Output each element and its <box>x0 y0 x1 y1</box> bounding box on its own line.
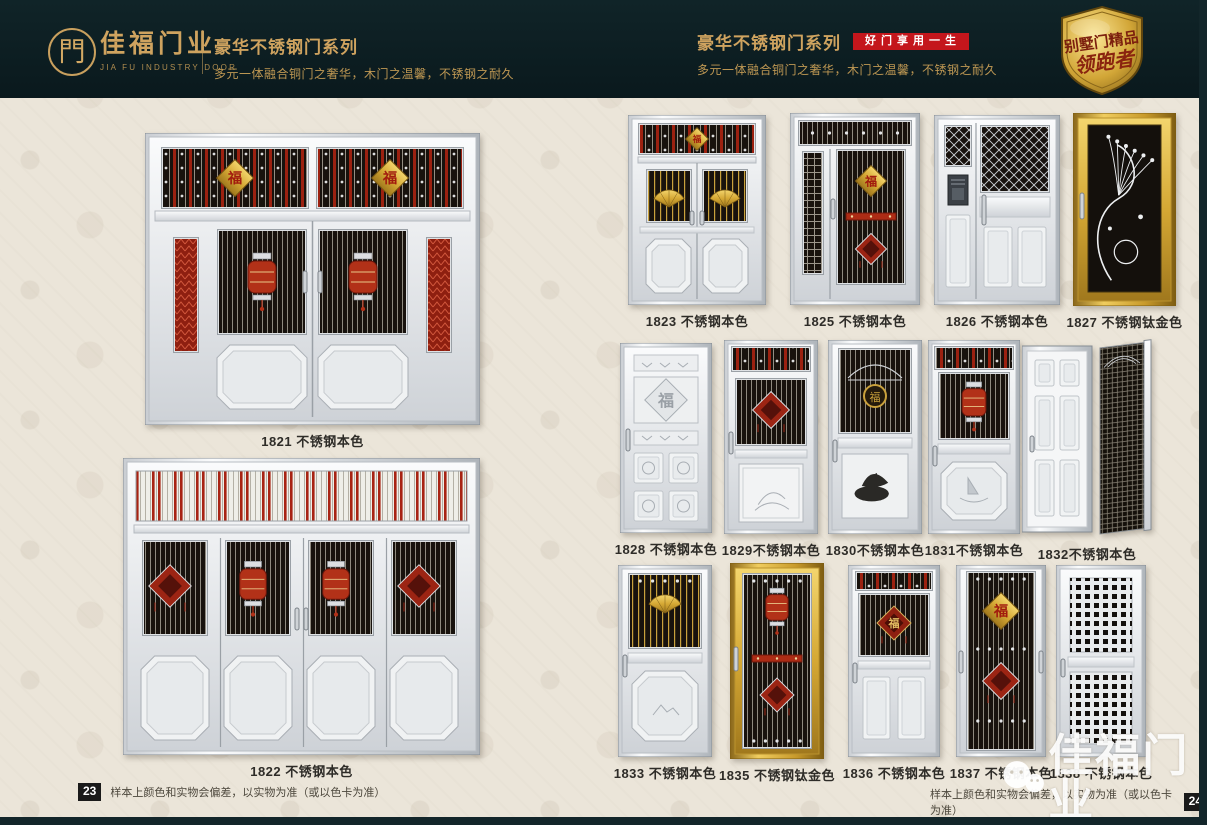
door-figure-1830: 福1830不锈钢本色 <box>828 340 922 559</box>
door-figure-1833: 1833 不锈钢本色 <box>618 565 712 782</box>
door-caption-1823: 1823 不锈钢本色 <box>628 311 766 330</box>
door-figure-1831: 1831不锈钢本色 <box>928 340 1020 559</box>
door-image-1825: 福 <box>790 113 920 305</box>
series-block-right: 豪华不锈钢门系列 好门享用一生 多元一体融合铜门之奢华，木门之温馨，不锈钢之耐久 <box>697 29 997 78</box>
door-caption-1836: 1836 不锈钢本色 <box>843 763 946 782</box>
door-image-1827 <box>1073 113 1176 306</box>
page-edge-right <box>1199 0 1207 825</box>
wechat-icon <box>1000 755 1047 801</box>
door-image-1833 <box>618 565 712 757</box>
door-caption-1835: 1835 不锈钢钛金色 <box>719 765 835 784</box>
door-image-1823: 福 <box>628 115 766 305</box>
premium-emblem-shield: 别墅门精品 领跑者 <box>1052 3 1152 97</box>
svg-text:福: 福 <box>870 390 881 404</box>
svg-text:福: 福 <box>692 133 702 144</box>
door-image-1829 <box>724 340 818 534</box>
series-block-left: 豪华不锈钢门系列 多元一体融合铜门之奢华，木门之温馨，不锈钢之耐久 <box>214 33 514 82</box>
series-title-right: 豪华不锈钢门系列 <box>697 29 841 54</box>
door-caption-1830: 1830不锈钢本色 <box>826 540 924 559</box>
door-figure-1829: 1829不锈钢本色 <box>724 340 818 559</box>
door-caption-1825: 1825 不锈钢本色 <box>790 311 920 330</box>
door-caption-1829: 1829不锈钢本色 <box>722 540 820 559</box>
door-image-1822 <box>123 458 480 755</box>
series-tagline-right: 多元一体融合铜门之奢华，木门之温馨，不锈钢之耐久 <box>697 61 997 78</box>
door-caption-1827: 1827 不锈钢钛金色 <box>1066 312 1182 331</box>
door-figure-1826: 1826 不锈钢本色 <box>934 115 1060 330</box>
door-caption-1821: 1821 不锈钢本色 <box>145 431 480 450</box>
door-figure-1835: 1835 不锈钢钛金色 <box>730 563 824 784</box>
svg-text:福: 福 <box>864 173 877 188</box>
door-image-1832 <box>1022 338 1152 538</box>
door-image-1835 <box>730 563 824 759</box>
page-edge-bottom <box>0 817 1207 825</box>
door-caption-1828: 1828 不锈钢本色 <box>615 539 718 558</box>
series-tagline-left: 多元一体融合铜门之奢华，木门之温馨，不锈钢之耐久 <box>214 65 514 82</box>
door-figure-1836: 福1836 不锈钢本色 <box>848 565 940 782</box>
door-glyph-icon: 門 <box>59 39 86 66</box>
door-caption-1833: 1833 不锈钢本色 <box>614 763 717 782</box>
door-figure-1823: 福1823 不锈钢本色 <box>628 115 766 330</box>
svg-text:福: 福 <box>657 391 674 410</box>
door-caption-1832: 1832不锈钢本色 <box>1022 544 1152 563</box>
watermark-text: 佳福门业 <box>1048 733 1207 823</box>
door-image-1821: 福福 <box>145 133 480 425</box>
door-caption-1826: 1826 不锈钢本色 <box>934 311 1060 330</box>
door-caption-1822: 1822 不锈钢本色 <box>123 761 480 780</box>
door-figure-1828: 福1828 不锈钢本色 <box>620 343 712 558</box>
door-figure-1825: 福1825 不锈钢本色 <box>790 113 920 330</box>
door-image-1831 <box>928 340 1020 534</box>
svg-text:福: 福 <box>227 169 242 187</box>
slogan-badge: 好门享用一生 <box>853 33 969 50</box>
page-number-left: 23 <box>78 783 101 801</box>
door-figure-1821: 福福1821 不锈钢本色 <box>145 133 480 450</box>
page-header: 門 佳福门业 JIA FU INDUSTRY DOOR 豪华不锈钢门系列 多元一… <box>0 0 1207 98</box>
footer-left: 23 样本上颜色和实物会偏差，以实物为准（或以色卡为准） <box>78 783 385 801</box>
series-title-left: 豪华不锈钢门系列 <box>214 33 514 58</box>
catalog-spread: 門 佳福门业 JIA FU INDUSTRY DOOR 豪华不锈钢门系列 多元一… <box>0 0 1207 825</box>
door-image-1830: 福 <box>828 340 922 534</box>
door-image-1828: 福 <box>620 343 712 533</box>
svg-text:福: 福 <box>888 616 900 630</box>
brand-logo: 門 <box>48 28 96 76</box>
door-figure-1827: 1827 不锈钢钛金色 <box>1073 113 1176 331</box>
svg-text:福: 福 <box>382 169 397 187</box>
door-image-1837: 福 <box>956 565 1046 757</box>
door-image-1826 <box>934 115 1060 305</box>
door-image-1836: 福 <box>848 565 940 757</box>
door-image-1838 <box>1056 565 1146 757</box>
door-figure-1822: 1822 不锈钢本色 <box>123 458 480 780</box>
header-divider <box>202 30 203 74</box>
door-figure-1832: 1832不锈钢本色 <box>1022 338 1152 563</box>
wechat-watermark: 佳福门业 <box>1000 733 1207 823</box>
door-caption-1831: 1831不锈钢本色 <box>925 540 1023 559</box>
disclaimer-left: 样本上颜色和实物会偏差，以实物为准（或以色卡为准） <box>110 784 385 800</box>
svg-text:福: 福 <box>993 602 1008 620</box>
